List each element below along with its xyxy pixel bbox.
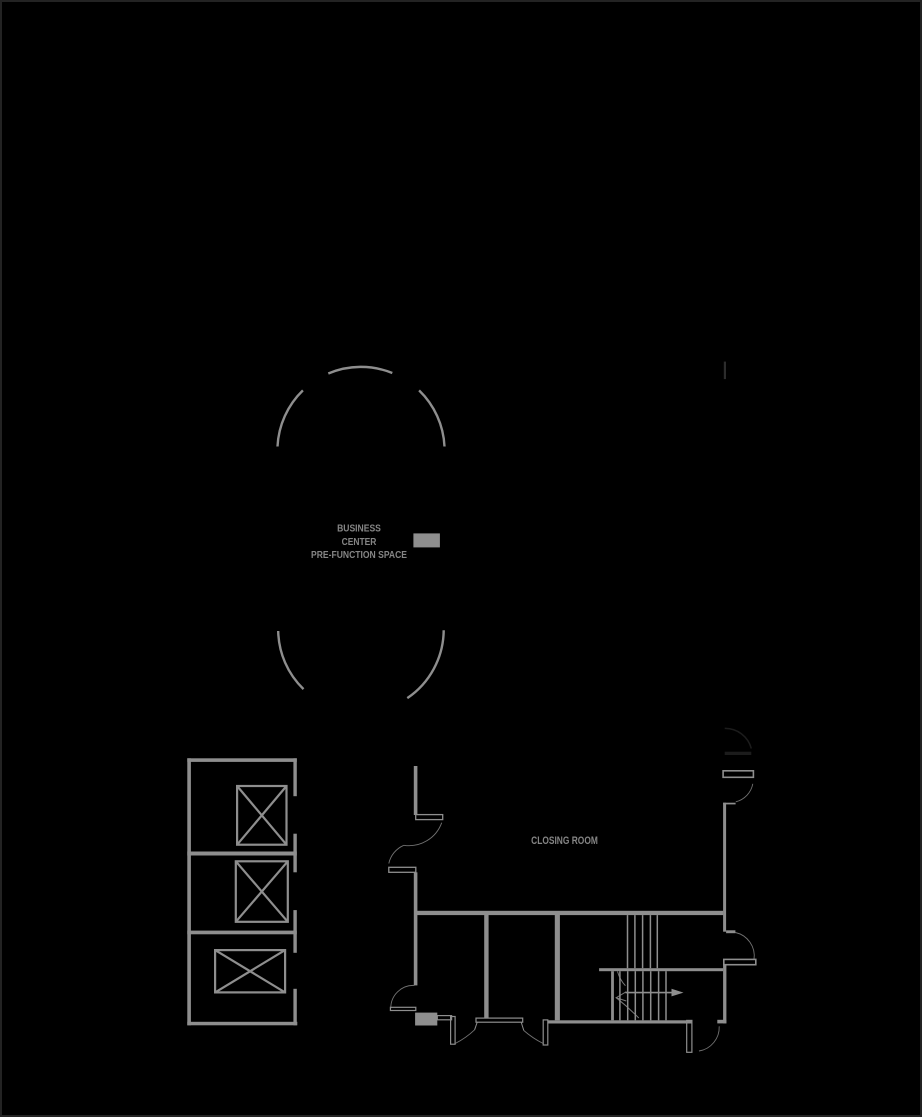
svg-text:CENTER: CENTER [342, 537, 377, 548]
svg-text:CLOSING ROOM: CLOSING ROOM [531, 835, 598, 847]
svg-text:PRE-FUNCTION SPACE: PRE-FUNCTION SPACE [311, 550, 407, 561]
svg-text:BUSINESS: BUSINESS [337, 523, 381, 534]
